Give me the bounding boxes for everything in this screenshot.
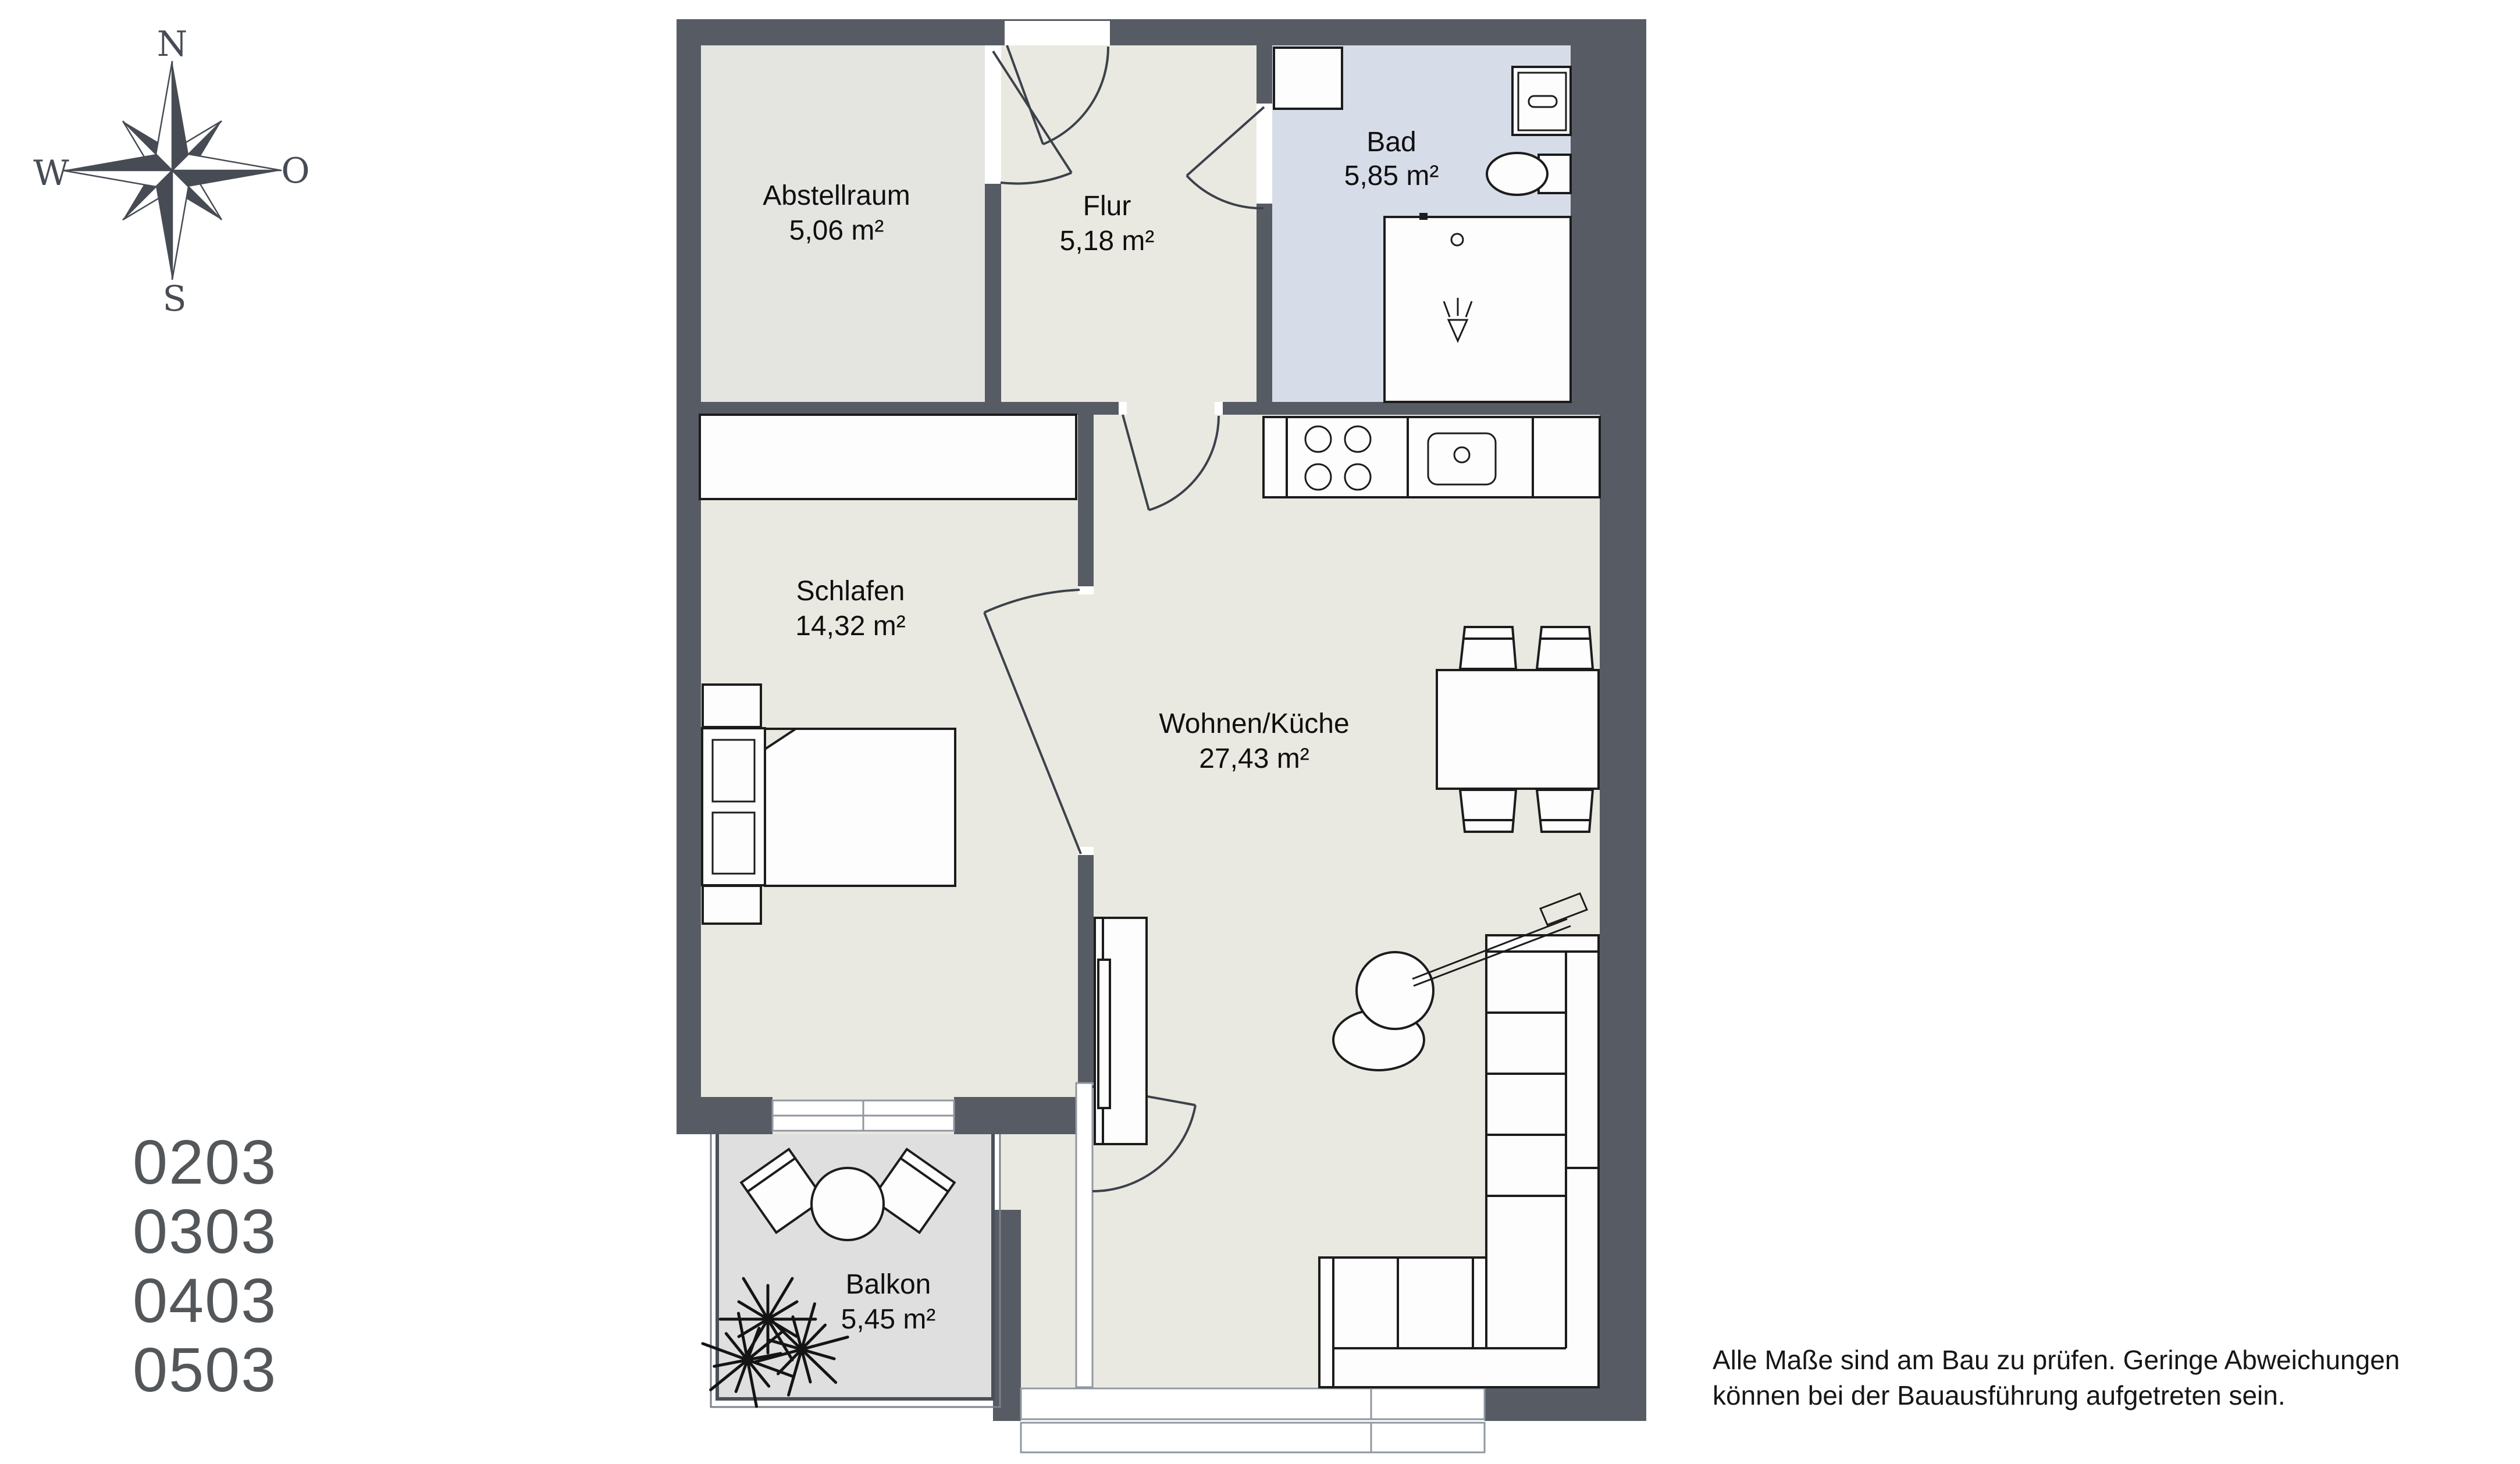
door-jamb [1257,195,1272,204]
door-jamb [985,47,1001,55]
balkon-door-glass [1076,1083,1092,1387]
tv-board [1095,918,1147,1144]
lamp-shade [1357,952,1433,1029]
door-jamb [1119,402,1127,415]
washing-machine [1274,48,1342,109]
compass-label-north: N [157,24,188,65]
wall-schlafen-wohnen-top [1078,415,1094,587]
wall-mid-right [1220,402,1600,415]
label-schlafen: Schlafen [796,576,905,607]
compass-point-s [172,170,188,280]
compass-label-west: W [33,153,69,194]
disclaimer-line: Alle Maße sind am Bau zu prüfen. Geringe… [1713,1342,2520,1378]
label-schlafen-area: 14,32 m² [795,611,905,642]
unit-number: 0403 [133,1266,277,1335]
compass-label-south: S [162,279,186,319]
entry-opening [1005,21,1110,45]
wall-abstell-flur [985,184,1001,402]
label-wohnen-area: 27,43 m² [1199,743,1309,774]
label-bad-area: 5,85 m² [1344,161,1439,191]
wall-schlafen-wohnen-bottom [1078,855,1094,1083]
wall-flur-bad-bottom [1257,204,1272,402]
compass-point-n [172,61,188,170]
compass-point-n [156,61,172,170]
label-flur-area: 5,18 m² [1060,226,1155,257]
wall-schlafen-bottom-left [677,1097,773,1134]
label-flur: Flur [1083,191,1131,222]
nightstand-bottom [703,886,761,924]
unit-number: 0303 [133,1196,277,1266]
toilet-bowl [1487,153,1547,195]
unit-number: 0203 [133,1127,277,1196]
compass-point-e [172,154,282,170]
kitchen-counter [1263,417,1600,497]
door-jamb [1215,402,1223,415]
label-balkon-area: 5,45 m² [841,1304,936,1335]
disclaimer-text: Alle Maße sind am Bau zu prüfen. Geringe… [1713,1342,2520,1413]
wohnen-window-band [1021,1388,1485,1419]
dining-chair [1460,790,1516,832]
dining-chair [1537,790,1593,832]
washbasin-cabinet [1512,67,1571,135]
tv-screen [1098,960,1110,1108]
nightstand-top [703,685,761,727]
balcony-table [811,1168,884,1240]
wall-top [677,19,1646,45]
unit-number-list: 0203 0303 0403 0503 [133,1127,277,1404]
shower [1384,217,1571,402]
wardrobe [700,415,1076,499]
bed-headboard [702,728,765,885]
counter [1263,417,1600,497]
dining-chair [1537,627,1593,669]
wall-balkon-stub [993,1210,1021,1421]
label-bad: Bad [1366,127,1416,158]
compass-point-w [63,170,172,187]
label-balkon: Balkon [846,1269,931,1300]
wall-mid-left [701,402,1121,415]
shower-handle [1419,213,1428,220]
wall-right-bad [1571,19,1646,402]
label-wohnen: Wohnen/Küche [1159,708,1349,739]
wall-flur-bad-top [1257,45,1272,104]
wall-bottom-solid [1485,1386,1646,1421]
wall-right [1600,402,1646,1421]
door-jamb [985,176,1001,184]
door-jamb [1078,586,1094,594]
wohnen-window-sill [1021,1423,1485,1452]
wall-schlafen-bottom-right [954,1097,1076,1134]
floorplan-page: Abstellraum 5,06 m² Flur 5,18 m² Bad 5,8… [0,0,2520,1464]
compass-point-s [156,170,172,280]
bed-mattress [765,729,955,886]
compass-rose: N O S W [33,24,309,319]
compass-point-w [63,154,172,170]
unit-number: 0503 [133,1335,277,1404]
label-abstellraum-area: 5,06 m² [789,215,884,246]
disclaimer-line: können bei der Bauausführung aufgetreten… [1713,1378,2520,1413]
label-abstellraum: Abstellraum [763,180,910,211]
dining-chair [1460,627,1516,669]
floor-plan: Abstellraum 5,06 m² Flur 5,18 m² Bad 5,8… [0,0,2520,1464]
dining-table [1437,670,1599,789]
compass-point-e [172,170,282,187]
wall-left [677,19,701,1134]
compass-label-east: O [281,151,309,191]
